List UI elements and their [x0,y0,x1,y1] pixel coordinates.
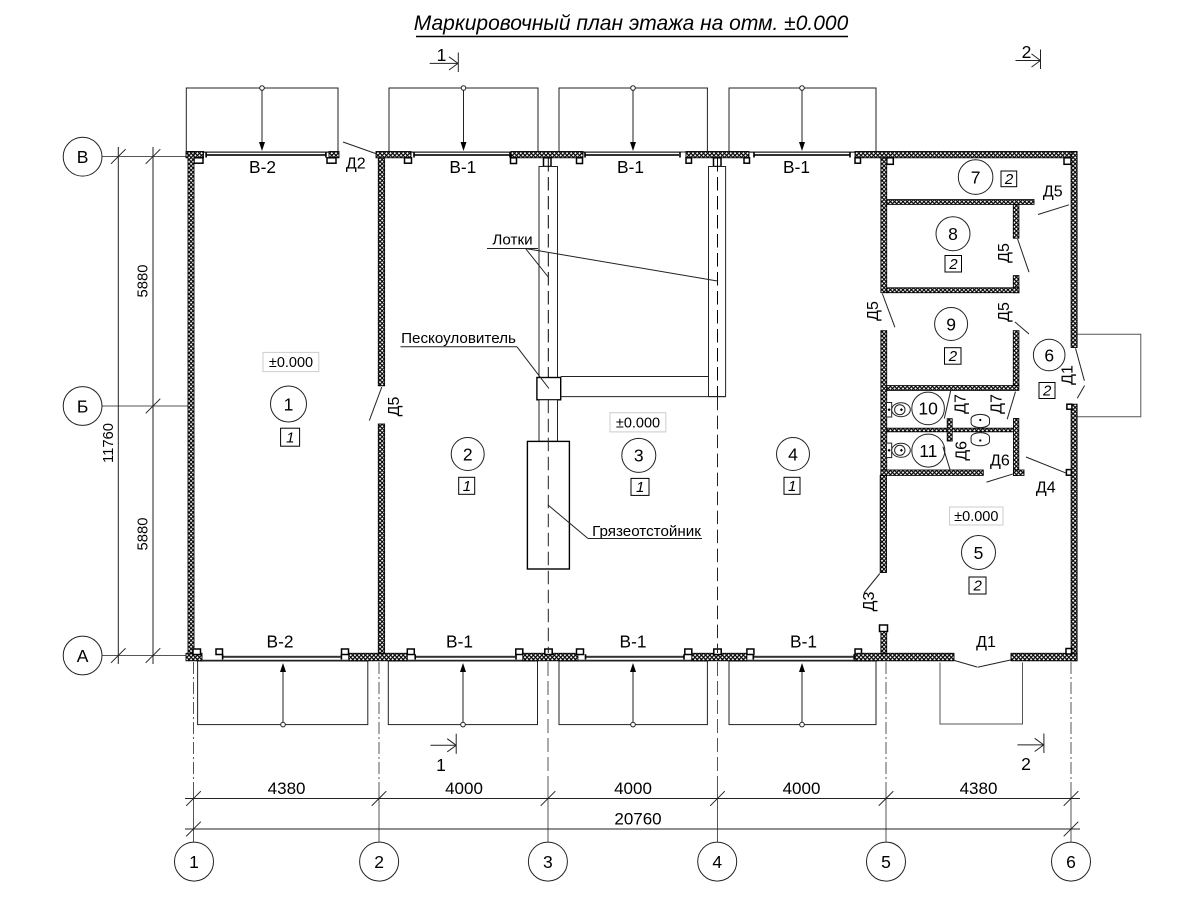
svg-text:2: 2 [973,578,983,595]
svg-text:Д5: Д5 [865,301,882,321]
svg-text:Д3: Д3 [861,592,878,612]
svg-text:Д2: Д2 [346,156,366,173]
svg-text:4000: 4000 [614,779,652,798]
svg-text:5: 5 [974,543,984,563]
svg-text:Грязеотстойник: Грязеотстойник [592,523,701,540]
svg-text:2: 2 [1022,42,1032,62]
svg-text:Д1: Д1 [1060,365,1077,385]
svg-text:4000: 4000 [783,779,821,798]
svg-text:8: 8 [948,224,958,244]
svg-text:В-2: В-2 [249,157,276,177]
svg-text:2: 2 [463,444,473,464]
svg-text:2: 2 [374,852,384,872]
svg-text:2: 2 [1021,754,1031,774]
svg-text:Д5: Д5 [1043,184,1063,201]
svg-text:В-1: В-1 [446,632,473,652]
svg-text:±0.000: ±0.000 [954,509,998,525]
svg-text:Д6: Д6 [990,453,1010,470]
svg-text:2: 2 [948,256,958,273]
svg-text:Маркировочный план этажа на от: Маркировочный план этажа на отм. ±0.000 [414,12,849,35]
svg-text:9: 9 [946,314,956,334]
svg-text:4: 4 [788,444,798,464]
svg-text:Д5: Д5 [386,397,403,417]
svg-text:6: 6 [1044,345,1054,365]
svg-text:В-1: В-1 [783,157,810,177]
svg-text:2: 2 [1004,171,1014,188]
svg-text:3: 3 [634,446,644,466]
svg-text:В-1: В-1 [617,157,644,177]
svg-text:1: 1 [463,478,471,495]
svg-text:Б: Б [77,396,88,416]
svg-text:±0.000: ±0.000 [616,415,660,431]
svg-text:6: 6 [1066,852,1076,872]
svg-text:1: 1 [284,394,294,414]
svg-text:Пескоуловитель: Пескоуловитель [401,330,516,347]
svg-text:Д7: Д7 [989,394,1006,414]
svg-text:3: 3 [543,852,553,872]
svg-text:4380: 4380 [268,779,306,798]
svg-text:11760: 11760 [101,423,117,463]
svg-text:4000: 4000 [445,779,483,798]
svg-text:Д7: Д7 [953,394,970,414]
svg-text:А: А [77,646,89,666]
svg-text:7: 7 [971,167,981,187]
svg-text:20760: 20760 [614,810,661,829]
svg-text:В-2: В-2 [267,632,294,652]
svg-text:В-1: В-1 [449,157,476,177]
svg-text:Лотки: Лотки [492,232,532,249]
svg-text:2: 2 [1042,383,1052,400]
svg-text:Д6: Д6 [954,441,971,461]
svg-text:Д5: Д5 [996,302,1013,322]
svg-text:В: В [77,147,89,167]
svg-text:Д4: Д4 [1036,480,1056,497]
svg-text:5: 5 [881,852,891,872]
svg-text:В-1: В-1 [790,632,817,652]
svg-text:4380: 4380 [960,779,998,798]
svg-text:1: 1 [636,479,644,496]
svg-text:В-1: В-1 [620,632,647,652]
svg-text:Д5: Д5 [996,243,1013,263]
svg-text:1: 1 [189,852,199,872]
svg-text:1: 1 [437,45,447,65]
svg-text:5880: 5880 [136,265,152,298]
svg-text:1: 1 [436,755,446,775]
svg-text:2: 2 [948,348,958,365]
svg-text:10: 10 [918,399,938,419]
svg-text:1: 1 [788,478,796,495]
svg-text:±0.000: ±0.000 [269,355,313,371]
svg-text:4: 4 [712,852,722,872]
svg-text:Д1: Д1 [976,634,996,651]
svg-text:1: 1 [286,430,294,447]
svg-text:5880: 5880 [136,518,152,551]
svg-text:11: 11 [919,441,937,461]
